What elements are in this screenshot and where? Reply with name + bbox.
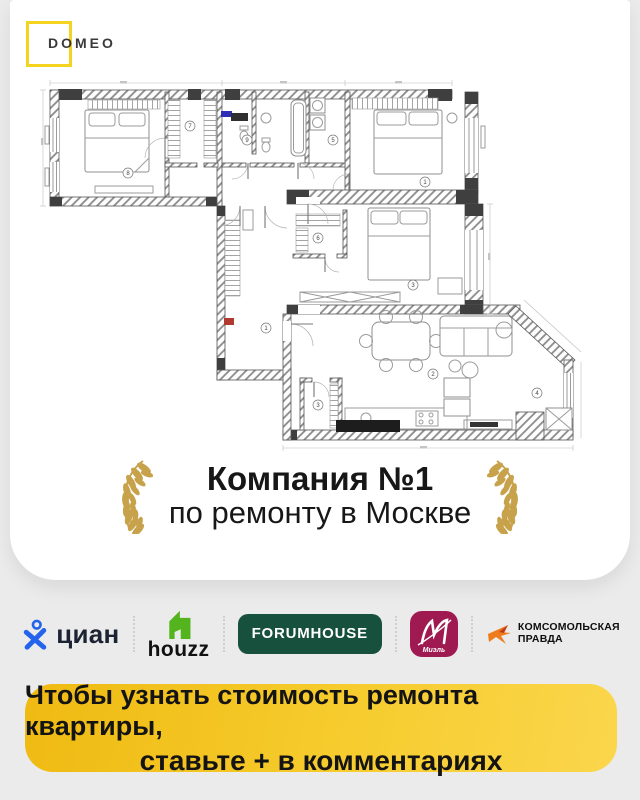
cian-person-icon <box>20 618 50 650</box>
plan-furniture <box>85 98 512 432</box>
kp-bird-icon <box>486 621 512 647</box>
forumhouse-label: FORUMHOUSE <box>252 625 368 642</box>
partner-miel: Миэль <box>410 611 458 657</box>
divider <box>223 616 225 652</box>
plan-red-item <box>224 318 234 325</box>
kp-label-line2: ПРАВДА <box>518 634 620 646</box>
white-card: DOMEO <box>10 0 630 580</box>
post-canvas: DOMEO <box>0 0 640 800</box>
laurel-right-icon <box>487 458 527 534</box>
divider <box>471 616 473 652</box>
partner-cian: циан <box>20 618 119 650</box>
divider <box>395 616 397 652</box>
laurel-left-icon <box>113 458 153 534</box>
houzz-house-icon <box>164 607 194 641</box>
houzz-label: houzz <box>148 638 210 662</box>
divider <box>133 616 135 652</box>
cta-banner: Чтобы узнать стоимость ремонта квартиры,… <box>25 684 617 772</box>
partners-row: циан houzz FORUMHOUSE Миэль <box>0 598 640 670</box>
floor-plan-drawing: 8 7 9 5 1 6 3 1 2 3 4 <box>0 78 640 463</box>
award-subtitle: по ремонту в Москве <box>169 496 471 530</box>
cta-line2: ставьте + в комментариях <box>140 745 503 777</box>
domeo-logo-text: DOMEO <box>48 35 116 51</box>
plan-doors <box>145 138 349 397</box>
award-banner: Компания №1 по ремонту в Москве <box>10 458 630 534</box>
partner-kp: КОМСОМОЛЬСКАЯ ПРАВДА <box>486 621 620 647</box>
cian-label: циан <box>56 619 119 650</box>
miel-label: Миэль <box>410 647 458 654</box>
plan-blue-item <box>221 111 232 117</box>
award-title: Компания №1 <box>169 462 471 497</box>
partner-houzz: houzz <box>148 607 210 662</box>
cta-line1: Чтобы узнать стоимость ремонта квартиры, <box>25 680 617 742</box>
partner-forumhouse: FORUMHOUSE <box>238 614 382 654</box>
